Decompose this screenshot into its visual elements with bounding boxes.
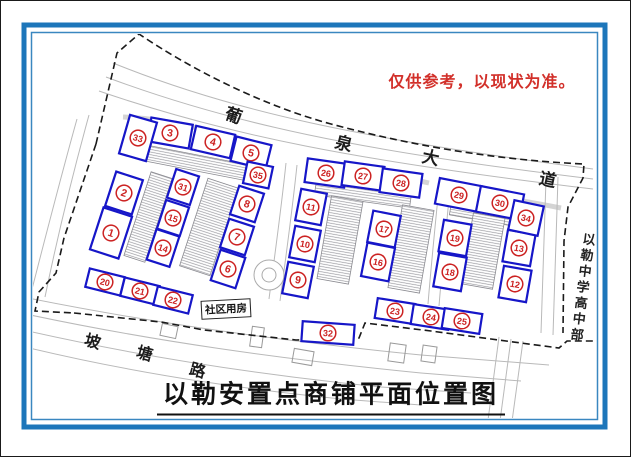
shop-10: 10 bbox=[289, 226, 321, 262]
shop-11: 11 bbox=[295, 189, 327, 225]
shop-31: 31 bbox=[167, 169, 199, 205]
shop-number: 35 bbox=[252, 169, 264, 181]
shop-number: 16 bbox=[372, 257, 384, 269]
shop-number: 11 bbox=[305, 202, 316, 214]
shop-number: 23 bbox=[389, 306, 400, 317]
shop-27: 27 bbox=[342, 161, 385, 190]
small-building bbox=[160, 323, 178, 338]
shop-28: 28 bbox=[380, 168, 423, 197]
small-building bbox=[292, 348, 314, 365]
shop-number: 30 bbox=[494, 198, 506, 210]
road-line bbox=[31, 119, 77, 293]
shop-17: 17 bbox=[367, 211, 401, 248]
road-line bbox=[507, 341, 523, 457]
road-line bbox=[495, 339, 511, 457]
shop-18: 18 bbox=[433, 253, 466, 291]
road-line bbox=[553, 177, 558, 335]
shop-number: 17 bbox=[378, 224, 390, 236]
shop-16: 16 bbox=[361, 243, 395, 282]
shop-number: 19 bbox=[449, 233, 461, 245]
shop-number: 18 bbox=[444, 267, 456, 279]
small-building bbox=[421, 345, 437, 363]
shop-number: 25 bbox=[456, 316, 467, 327]
shop-32: 32 bbox=[301, 321, 354, 345]
shop-22: 22 bbox=[153, 286, 193, 313]
shop-12: 12 bbox=[498, 266, 531, 302]
shop-34: 34 bbox=[508, 200, 544, 236]
shop-number: 12 bbox=[509, 279, 521, 291]
shop-4: 4 bbox=[191, 126, 235, 158]
roundabout-outer bbox=[254, 260, 284, 290]
roundabout bbox=[254, 260, 284, 290]
shop-35: 35 bbox=[243, 162, 273, 189]
road-line bbox=[45, 115, 89, 297]
shop-number: 34 bbox=[520, 212, 532, 224]
shop-19: 19 bbox=[438, 220, 471, 256]
shop-number: 32 bbox=[323, 328, 334, 339]
shop-23: 23 bbox=[375, 298, 416, 324]
site-plan-map: 1234567891011121314151617181920212223242… bbox=[1, 1, 631, 457]
site-plan-page: 1234567891011121314151617181920212223242… bbox=[0, 0, 631, 457]
shop-2: 2 bbox=[105, 172, 143, 215]
shop-9: 9 bbox=[282, 262, 314, 298]
shop-20: 20 bbox=[85, 268, 125, 295]
shop-number: 26 bbox=[320, 168, 331, 179]
road-line bbox=[17, 345, 421, 405]
shop-number: 13 bbox=[513, 243, 525, 255]
shop-number: 27 bbox=[357, 171, 368, 182]
shop-number: 10 bbox=[299, 239, 311, 251]
shop-number: 24 bbox=[425, 312, 436, 323]
shop-number: 28 bbox=[395, 178, 406, 189]
shop-number: 29 bbox=[453, 190, 465, 202]
road-line bbox=[483, 337, 499, 457]
